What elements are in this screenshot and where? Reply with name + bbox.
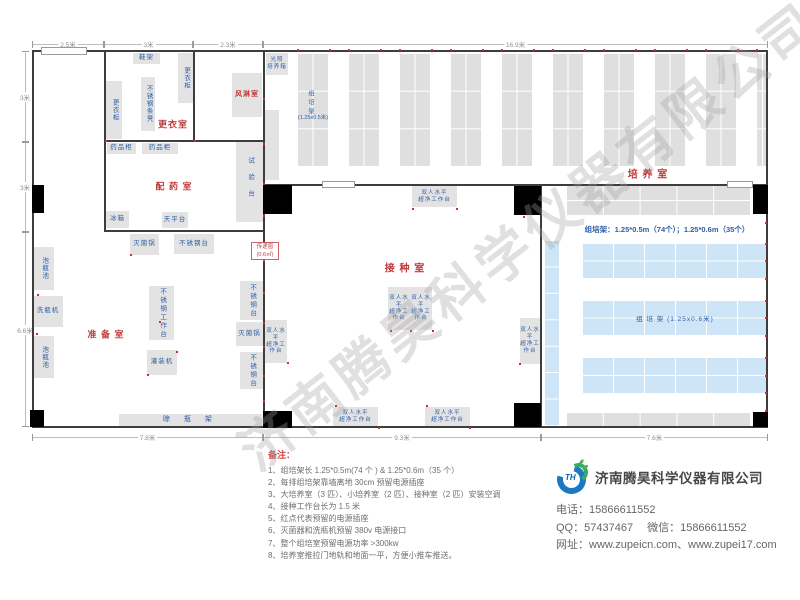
power-outlet: [263, 143, 265, 145]
dimension: 6.6米: [21, 232, 29, 427]
dim-tick: [193, 41, 194, 48]
balance-table: 天平台: [162, 212, 188, 228]
door: [30, 410, 44, 427]
room-label-inoculation-room: 接 种 室: [385, 260, 426, 275]
dim-tick: [767, 434, 768, 441]
power-outlet: [329, 49, 331, 51]
power-outlet: [194, 140, 196, 142]
wechat-number: 15866611552: [680, 522, 746, 534]
clean-bench: 双人水平 超净工作台: [425, 407, 470, 427]
culture-rack: [566, 185, 750, 215]
transfer-window: 传递窗(0.6㎡): [251, 242, 279, 260]
power-outlet: [756, 49, 758, 51]
light-incubator: 光照 培养箱: [266, 53, 288, 75]
power-outlet: [533, 49, 535, 51]
wardrobe: 更衣柜: [178, 53, 193, 103]
note-item: 8、培养室推拉门地轨和地面一平，方便小推车推送。: [268, 550, 500, 562]
power-outlet: [263, 215, 265, 217]
wall: [766, 50, 768, 428]
door: [263, 411, 292, 428]
power-outlet: [482, 49, 484, 51]
dim-tick: [22, 232, 29, 233]
notes-list: 1、组培架长 1.25*0.5m(74 个 ) & 1.25*0.6m（35 个…: [268, 465, 500, 562]
room-label-dispensing-room: 配 药 室: [155, 180, 192, 193]
power-outlet: [263, 183, 265, 185]
culture-rack: [654, 53, 685, 166]
dimension-label: 16.9米: [504, 39, 527, 49]
power-outlet: [287, 362, 289, 364]
filling-machine: 灌装机: [147, 350, 177, 375]
power-outlet: [686, 49, 688, 51]
note-item: 2、每排组培架靠墙离地 30cm 预留电源插座: [268, 477, 500, 489]
room-label-locker-room: 更衣室: [158, 118, 188, 131]
contact-block: 电话：15866611552 QQ：57437467微信：15866611552…: [556, 502, 777, 555]
door-opening: [41, 47, 87, 55]
culture-rack: [544, 240, 559, 425]
air-shower: 风淋室: [232, 73, 262, 117]
power-outlet: [765, 392, 767, 394]
power-outlet: [737, 49, 739, 51]
culture-rack: [582, 357, 768, 393]
wall: [105, 140, 265, 142]
door: [32, 185, 44, 213]
door: [753, 412, 768, 427]
power-outlet: [390, 330, 392, 332]
steel-table: 不锈钢台: [240, 352, 263, 389]
notes-section: 备注： 1、组培架长 1.25*0.5m(74 个 ) & 1.25*0.6m（…: [268, 448, 500, 562]
dimension-label: 7.8米: [138, 432, 158, 442]
power-outlet: [263, 346, 265, 348]
wall: [193, 51, 195, 142]
power-outlet: [469, 427, 471, 429]
door: [514, 403, 541, 427]
test-bench: 试验台: [236, 142, 263, 222]
power-outlet: [263, 292, 265, 294]
note-item: 3、大培养室（3 匹）、小培养室（2 匹）、接种室（2 匹）安装空调: [268, 489, 500, 501]
note-item: 6、灭菌器和洗瓶机预留 380v 电源接口: [268, 525, 500, 537]
dim-tick: [104, 41, 105, 48]
website-urls: www.zupeicn.com、www.zupei17.com: [589, 539, 777, 551]
dimension: 7.6米: [541, 433, 768, 441]
dim-tick: [541, 434, 542, 441]
transfer-window-size: (0.6㎡): [252, 251, 278, 259]
culture-rack: [501, 53, 532, 166]
clean-bench: 双人水平 超净工作台: [520, 318, 540, 364]
dimension: 3米: [104, 40, 193, 48]
rack-count-note: 组培架：1.25*0.5m（74个）；1.25*0.6m（35个）: [575, 224, 759, 235]
dim-tick: [22, 142, 29, 143]
dim-tick: [263, 41, 264, 48]
door-opening: [727, 181, 753, 188]
power-outlet: [263, 98, 265, 100]
power-outlet: [263, 400, 265, 402]
dimension: 2.3米: [193, 40, 263, 48]
culture-rack: [582, 243, 768, 278]
clean-bench: 双人水平 超净工作台: [333, 407, 378, 427]
power-outlet: [635, 49, 637, 51]
power-outlet: [523, 216, 525, 218]
note-item: 7、整个组培室预留电源功率 >300kw: [268, 538, 500, 550]
wardrobe: 更衣柜: [106, 81, 122, 139]
culture-rack: [450, 53, 481, 166]
culture-rack: [265, 110, 279, 180]
dimension-label: 9.3米: [392, 432, 412, 442]
note-item: 1、组培架长 1.25*0.5m(74 个 ) & 1.25*0.6m（35 个…: [268, 465, 500, 477]
power-outlet: [603, 49, 605, 51]
dim-tick: [263, 434, 264, 441]
fridge: 冰箱: [106, 211, 129, 228]
clean-bench: 双人水平 超净工作台: [265, 320, 287, 363]
culture-rack: [566, 412, 750, 427]
note-item: 5、红点代表预留的电源插座: [268, 513, 500, 525]
wall: [263, 51, 265, 427]
power-outlet: [456, 208, 458, 210]
power-outlet: [263, 322, 265, 324]
shoe-rack: 鞋架: [133, 53, 160, 64]
qq-label: QQ：: [556, 522, 584, 534]
dimension: 7.8米: [32, 433, 263, 441]
wechat-label: 微信：: [647, 522, 680, 534]
door: [753, 185, 768, 214]
dimension-label: 3米: [18, 92, 32, 102]
power-outlet: [519, 363, 521, 365]
rack-label: 组 培 架 (1.25x0.6米): [636, 313, 714, 323]
dimension-label: 3米: [18, 182, 32, 192]
bottle-washer: 洗瓶机: [33, 296, 63, 327]
power-outlet: [348, 49, 350, 51]
rack-size-label: (1.25x0.5米): [291, 113, 335, 121]
phone-label: 电话：: [556, 504, 589, 516]
dimension: 3米: [21, 51, 29, 142]
power-outlet: [765, 375, 767, 377]
steel-table: 不锈钢台: [174, 234, 214, 254]
company-logo: TH: [556, 458, 588, 496]
power-outlet: [431, 49, 433, 51]
phone-line: 电话：15866611552: [556, 502, 777, 520]
medicine-cabinet: 药品柜: [107, 143, 136, 154]
steel-worktable: 不锈钢工作台: [149, 286, 174, 340]
power-outlet: [654, 49, 656, 51]
steel-strip-bench: 不锈钢条凳: [141, 77, 155, 131]
sterilizer: 灭菌锅: [236, 322, 263, 346]
power-outlet: [412, 208, 414, 210]
power-outlet: [450, 49, 452, 51]
power-outlet: [765, 300, 767, 302]
room-label-prep-room: 准 备 室: [87, 328, 124, 341]
power-outlet: [159, 321, 161, 323]
power-outlet: [263, 375, 265, 377]
power-outlet: [399, 49, 401, 51]
company-header: TH 济南腾昊科学仪器有限公司: [556, 458, 777, 496]
qq-number: 57437467: [584, 522, 633, 534]
power-outlet: [552, 49, 554, 51]
wall: [105, 230, 265, 232]
power-outlet: [432, 330, 434, 332]
steel-table: 不锈钢台: [240, 281, 263, 320]
website-line: 网址：www.zupeicn.com、www.zupei17.com: [556, 537, 777, 555]
power-outlet: [765, 243, 767, 245]
power-outlet: [426, 405, 428, 407]
culture-rack: [552, 53, 583, 166]
power-outlet: [765, 410, 767, 412]
transfer-window-label: 传递窗: [252, 243, 278, 251]
bottle-soak-pool: 泡瓶池: [33, 247, 54, 290]
dim-tick: [767, 41, 768, 48]
power-outlet: [130, 254, 132, 256]
wall: [540, 186, 542, 427]
culture-rack: [705, 53, 736, 166]
power-outlet: [501, 49, 503, 51]
notes-title: 备注：: [268, 448, 500, 461]
culture-rack: 组 培 架 (1.25x0.6米): [582, 300, 768, 335]
culture-rack: [603, 53, 634, 166]
power-outlet: [765, 357, 767, 359]
power-outlet: [380, 49, 382, 51]
power-outlet: [335, 405, 337, 407]
note-item: 4、接种工作台长为 1.5 米: [268, 501, 500, 513]
power-outlet: [263, 260, 265, 262]
power-outlet: [37, 294, 39, 296]
clean-bench: 双人水平 超净工作台: [412, 186, 457, 207]
door: [514, 186, 541, 215]
power-outlet: [765, 222, 767, 224]
power-outlet: [36, 333, 38, 335]
dim-tick: [22, 426, 29, 427]
power-outlet: [410, 330, 412, 332]
company-name: 济南腾昊科学仪器有限公司: [595, 467, 763, 487]
dimension: 9.3米: [263, 433, 541, 441]
qq-wechat-line: QQ：57437467微信：15866611552: [556, 520, 777, 538]
dim-tick: [22, 51, 29, 52]
door: [263, 185, 292, 214]
door-opening: [322, 181, 355, 188]
power-outlet: [765, 278, 767, 280]
dimension-label: 3米: [141, 39, 155, 49]
power-outlet: [297, 49, 299, 51]
power-outlet: [765, 317, 767, 319]
culture-rack: [399, 53, 430, 166]
clean-bench: 双人水平 超净工作台: [410, 287, 432, 330]
dim-tick: [32, 434, 33, 441]
power-outlet: [705, 49, 707, 51]
power-outlet: [378, 427, 380, 429]
wall: [32, 426, 768, 428]
medicine-cabinet: 药品柜: [142, 143, 178, 154]
power-outlet: [584, 49, 586, 51]
dim-tick: [32, 41, 33, 48]
web-label: 网址：: [556, 539, 589, 551]
culture-rack: [348, 53, 379, 166]
room-label-culture-room: 培 养 室: [628, 166, 669, 181]
power-outlet: [176, 351, 178, 353]
power-outlet: [105, 140, 107, 142]
dimension-label: 7.6米: [645, 432, 665, 442]
company-info: TH 济南腾昊科学仪器有限公司 电话：15866611552 QQ：574374…: [556, 458, 777, 555]
clean-bench: 双人水平 超净工作台: [388, 287, 410, 330]
bottle-soak-pool: 泡瓶池: [33, 336, 54, 378]
dimension-label: 2.3米: [218, 39, 238, 49]
power-outlet: [765, 335, 767, 337]
dimension: 16.9米: [263, 40, 768, 48]
phone-number: 15866611552: [589, 504, 655, 516]
power-outlet: [147, 374, 149, 376]
logo-initials: TH: [565, 473, 576, 482]
power-outlet: [765, 260, 767, 262]
wall: [32, 50, 34, 428]
sterilizer: 灭菌锅: [130, 234, 159, 255]
dimension: 3米: [21, 142, 29, 232]
